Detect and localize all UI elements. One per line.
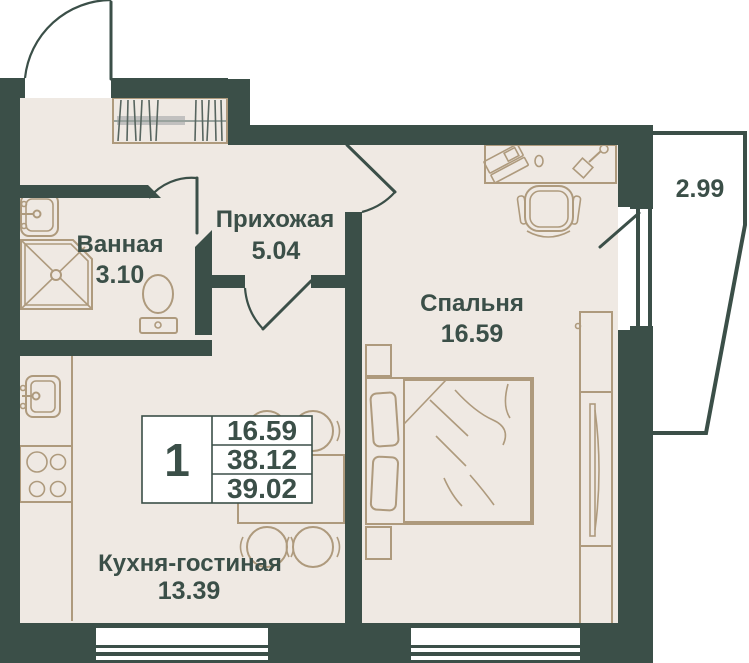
pillow xyxy=(371,456,399,510)
bathroom-wall xyxy=(0,185,161,198)
bathroom-area: 3.10 xyxy=(96,261,145,289)
pillow xyxy=(370,392,399,447)
wall-segment xyxy=(250,125,653,145)
info-table: 1 16.59 38.12 39.02 xyxy=(142,415,312,504)
bathroom-wall xyxy=(20,340,212,356)
wall-segment xyxy=(20,623,96,663)
nightstand xyxy=(366,345,391,376)
wall-segment xyxy=(0,78,20,663)
total-area-value: 39.02 xyxy=(227,473,297,504)
bedroom-label: Спальня xyxy=(420,290,524,317)
rooms-count: 1 xyxy=(164,434,190,486)
kitchen-sink xyxy=(21,376,61,417)
floor-plan-page: 1 16.59 38.12 39.02 Ванная 3.10 Прихожая… xyxy=(0,0,749,663)
balcony-area-label: 2.99 xyxy=(676,175,725,203)
window-glass xyxy=(96,623,268,663)
wall-segment xyxy=(618,125,653,207)
bathroom-sink xyxy=(21,194,58,236)
blanket xyxy=(404,380,531,522)
wall-segment xyxy=(618,330,653,663)
hallway-wall xyxy=(311,275,347,288)
wall-segment xyxy=(580,623,653,663)
bathroom-wall xyxy=(195,230,212,335)
toilet xyxy=(140,275,177,333)
wall-segment xyxy=(111,78,228,98)
kitchen-living-label: Кухня-гостиная xyxy=(98,550,282,577)
hallway-wardrobe xyxy=(113,98,227,143)
hallway-wall xyxy=(212,275,245,288)
stove xyxy=(20,446,72,502)
living-area-value: 16.59 xyxy=(227,415,297,446)
area-no-balcony-value: 38.12 xyxy=(227,444,297,475)
kitchen-window xyxy=(96,623,268,663)
bedroom-area: 16.59 xyxy=(441,320,504,348)
bedroom-window xyxy=(411,623,580,663)
hallway-label: Прихожая xyxy=(216,206,334,233)
bedroom-kitchen-wall xyxy=(345,212,362,623)
floor-plan: 1 16.59 38.12 39.02 Ванная 3.10 Прихожая… xyxy=(0,0,749,663)
bathroom-label: Ванная xyxy=(76,231,163,258)
hallway-area: 5.04 xyxy=(252,237,301,265)
window-glass xyxy=(411,623,580,663)
wall-segment xyxy=(268,623,411,663)
wall-segment xyxy=(228,79,250,145)
nightstand xyxy=(366,527,391,559)
kitchen-living-area: 13.39 xyxy=(158,577,221,605)
bedroom-wardrobe xyxy=(576,312,613,624)
